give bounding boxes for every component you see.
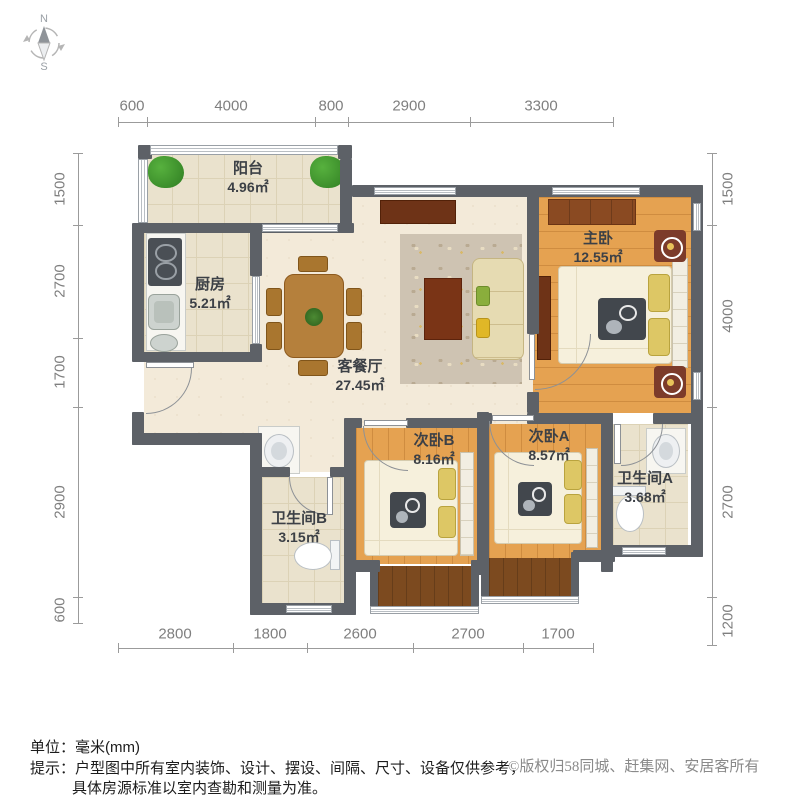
dimension-label: 2700 xyxy=(451,626,484,643)
bedroom-b-wardrobe xyxy=(460,452,474,556)
wall-segment xyxy=(340,159,352,233)
dimension-label: 2800 xyxy=(158,626,191,643)
balcony-plant xyxy=(148,156,184,188)
dimension-tick xyxy=(613,117,614,127)
dimension-tick xyxy=(73,153,83,154)
balcony-door xyxy=(262,224,338,232)
master-window xyxy=(552,187,640,195)
dimension-tick xyxy=(413,643,414,653)
dimension-label: 2600 xyxy=(343,626,376,643)
master-pillow xyxy=(648,274,670,312)
master-cabinet xyxy=(548,199,636,225)
bay-window-b xyxy=(370,606,479,614)
wall-segment xyxy=(573,550,615,562)
dimension-tick xyxy=(73,597,83,598)
wall-segment xyxy=(527,185,539,334)
sofa-pillow-yellow xyxy=(476,318,490,338)
room-name: 客餐厅 xyxy=(335,358,384,377)
bedroom-b-tray xyxy=(390,492,426,528)
dimension-line xyxy=(712,153,713,645)
room-name: 卫生间B xyxy=(271,510,327,529)
dimension-tick xyxy=(307,643,308,653)
dimension-tick xyxy=(707,597,717,598)
dimension-tick xyxy=(147,117,148,127)
room-label: 卫生间A3.68㎡ xyxy=(617,470,673,506)
dimension-tick xyxy=(118,117,119,127)
wall-segment xyxy=(527,392,539,413)
dimension-label: 2700 xyxy=(720,485,737,518)
bathroom-a-window xyxy=(622,547,666,555)
tip-line-1: 提示：户型图中所有室内装饰、设计、摆设、间隔、尺寸、设备仅供参考， xyxy=(30,757,525,778)
balcony-side-window xyxy=(138,159,148,223)
bay-window-a xyxy=(481,596,579,604)
wall-segment xyxy=(338,145,352,159)
room-area: 5.21㎡ xyxy=(189,295,230,313)
bedroom-b-pillow xyxy=(438,506,456,538)
stove xyxy=(148,238,182,286)
dimension-label: 2900 xyxy=(392,98,425,115)
master-pillow xyxy=(648,318,670,356)
bathroom-b-window xyxy=(286,605,332,613)
master-wardrobe xyxy=(672,258,688,368)
room-label: 次卧B8.16㎡ xyxy=(413,432,454,468)
dining-chair xyxy=(298,360,328,376)
wall-segment xyxy=(250,467,290,477)
room-name: 厨房 xyxy=(189,276,230,295)
bathroom-a-door-leaf xyxy=(614,424,621,464)
room-name: 卫生间A xyxy=(617,470,673,489)
tip-line-2: 具体房源标准以室内查勘和测量为准。 xyxy=(72,777,327,798)
room-label: 阳台4.96㎡ xyxy=(227,160,268,196)
room-label: 主卧12.55㎡ xyxy=(573,230,622,266)
dining-chair xyxy=(346,288,362,316)
dimension-label: 2900 xyxy=(52,485,69,518)
room-area: 12.55㎡ xyxy=(573,249,622,267)
room-name: 次卧B xyxy=(413,432,454,451)
bay-window-b-floor xyxy=(378,566,471,606)
wall-segment xyxy=(344,420,356,615)
dimension-line xyxy=(78,153,79,623)
dimension-label: 1500 xyxy=(720,172,737,205)
wall-segment xyxy=(250,231,262,276)
room-area: 27.45㎡ xyxy=(335,377,384,395)
floorplan-canvas: N S 阳台4.96㎡厨房5.21㎡客餐厅27.45㎡主卧12.55㎡次卧B8.… xyxy=(0,0,800,800)
dining-chair xyxy=(266,322,282,350)
bedroom-a-tray xyxy=(518,482,552,516)
bedroom-a-pillow xyxy=(564,494,582,524)
room-area: 3.15㎡ xyxy=(271,529,327,547)
dimension-tick xyxy=(523,643,524,653)
dimension-label: 4000 xyxy=(720,299,737,332)
wall-segment xyxy=(481,552,489,600)
bay-window-a-floor xyxy=(489,558,571,596)
dining-chair xyxy=(266,288,282,316)
master-side-window xyxy=(693,372,701,400)
kettle xyxy=(150,334,178,352)
compass-south-label: S xyxy=(40,61,47,72)
compass-north-label: N xyxy=(40,13,48,25)
living-window xyxy=(374,187,456,195)
dimension-tick xyxy=(233,643,234,653)
dimension-label: 1700 xyxy=(541,626,574,643)
dimension-label: 1200 xyxy=(720,604,737,637)
room-label: 次卧A8.57㎡ xyxy=(528,428,569,464)
dimension-label: 2700 xyxy=(52,264,69,297)
dimension-tick xyxy=(707,225,717,226)
wall-segment xyxy=(344,418,362,428)
unit-note: 单位：毫米(mm) xyxy=(30,736,140,757)
room-name: 主卧 xyxy=(573,230,622,249)
dimension-tick xyxy=(315,117,316,127)
room-area: 8.16㎡ xyxy=(413,451,454,469)
wall-segment xyxy=(330,467,356,477)
wall-segment xyxy=(471,560,479,610)
coffee-table xyxy=(424,278,462,340)
dimension-tick xyxy=(118,643,119,653)
dimension-label: 1500 xyxy=(52,172,69,205)
dimension-tick xyxy=(593,643,594,653)
dimension-label: 1800 xyxy=(253,626,286,643)
dimension-tick xyxy=(73,338,83,339)
bedroom-b-pillow xyxy=(438,468,456,500)
wall-segment xyxy=(691,406,703,557)
dimension-line xyxy=(118,648,593,649)
dimension-tick xyxy=(348,117,349,127)
copyright-note: ©版权归58同城、赶集网、安居客所有 xyxy=(508,755,759,776)
dimension-label: 4000 xyxy=(214,98,247,115)
dimension-tick xyxy=(73,225,83,226)
hall-basin xyxy=(264,434,294,468)
dining-chair xyxy=(346,322,362,350)
dimension-tick xyxy=(707,645,717,646)
dimension-tick xyxy=(73,407,83,408)
master-side-window xyxy=(693,203,701,231)
dimension-tick xyxy=(73,623,83,624)
wall-segment xyxy=(132,352,262,362)
room-label: 客餐厅27.45㎡ xyxy=(335,358,384,394)
dimension-label: 600 xyxy=(119,98,144,115)
room-area: 4.96㎡ xyxy=(227,179,268,197)
tv-cabinet-living xyxy=(380,200,456,224)
dimension-tick xyxy=(707,407,717,408)
sofa xyxy=(472,258,524,360)
compass-icon: N S xyxy=(16,10,72,72)
wall-segment xyxy=(477,412,489,575)
room-area: 8.57㎡ xyxy=(528,447,569,465)
dimension-tick xyxy=(470,117,471,127)
balcony-window xyxy=(150,145,338,155)
room-label: 卫生间B3.15㎡ xyxy=(271,510,327,546)
master-bed-tray xyxy=(598,298,646,340)
kitchen-sink xyxy=(148,294,180,330)
wall-segment xyxy=(250,433,262,615)
room-name: 次卧A xyxy=(528,428,569,447)
dimension-tick xyxy=(707,153,717,154)
bedroom-a-pillow xyxy=(564,460,582,490)
dimension-label: 3300 xyxy=(524,98,557,115)
wall-segment xyxy=(132,231,144,360)
dimension-label: 1700 xyxy=(52,355,69,388)
bedside-lamp xyxy=(654,366,686,398)
dimension-label: 800 xyxy=(318,98,343,115)
wall-segment xyxy=(250,344,262,362)
wall-segment xyxy=(370,560,378,610)
dimension-label: 600 xyxy=(52,597,69,622)
room-label: 厨房5.21㎡ xyxy=(189,276,230,312)
bedroom-a-wardrobe xyxy=(586,448,598,548)
sofa-pillow-green xyxy=(476,286,490,306)
wall-segment xyxy=(571,552,579,600)
room-name: 阳台 xyxy=(227,160,268,179)
wall-segment xyxy=(132,433,262,445)
bathroom-b-door-leaf xyxy=(327,477,333,515)
dimension-line xyxy=(118,122,613,123)
bedside-lamp xyxy=(654,230,686,262)
dining-chair xyxy=(298,256,328,272)
room-area: 3.68㎡ xyxy=(617,489,673,507)
kitchen-sliding-door xyxy=(252,276,260,344)
dining-table xyxy=(284,274,344,358)
